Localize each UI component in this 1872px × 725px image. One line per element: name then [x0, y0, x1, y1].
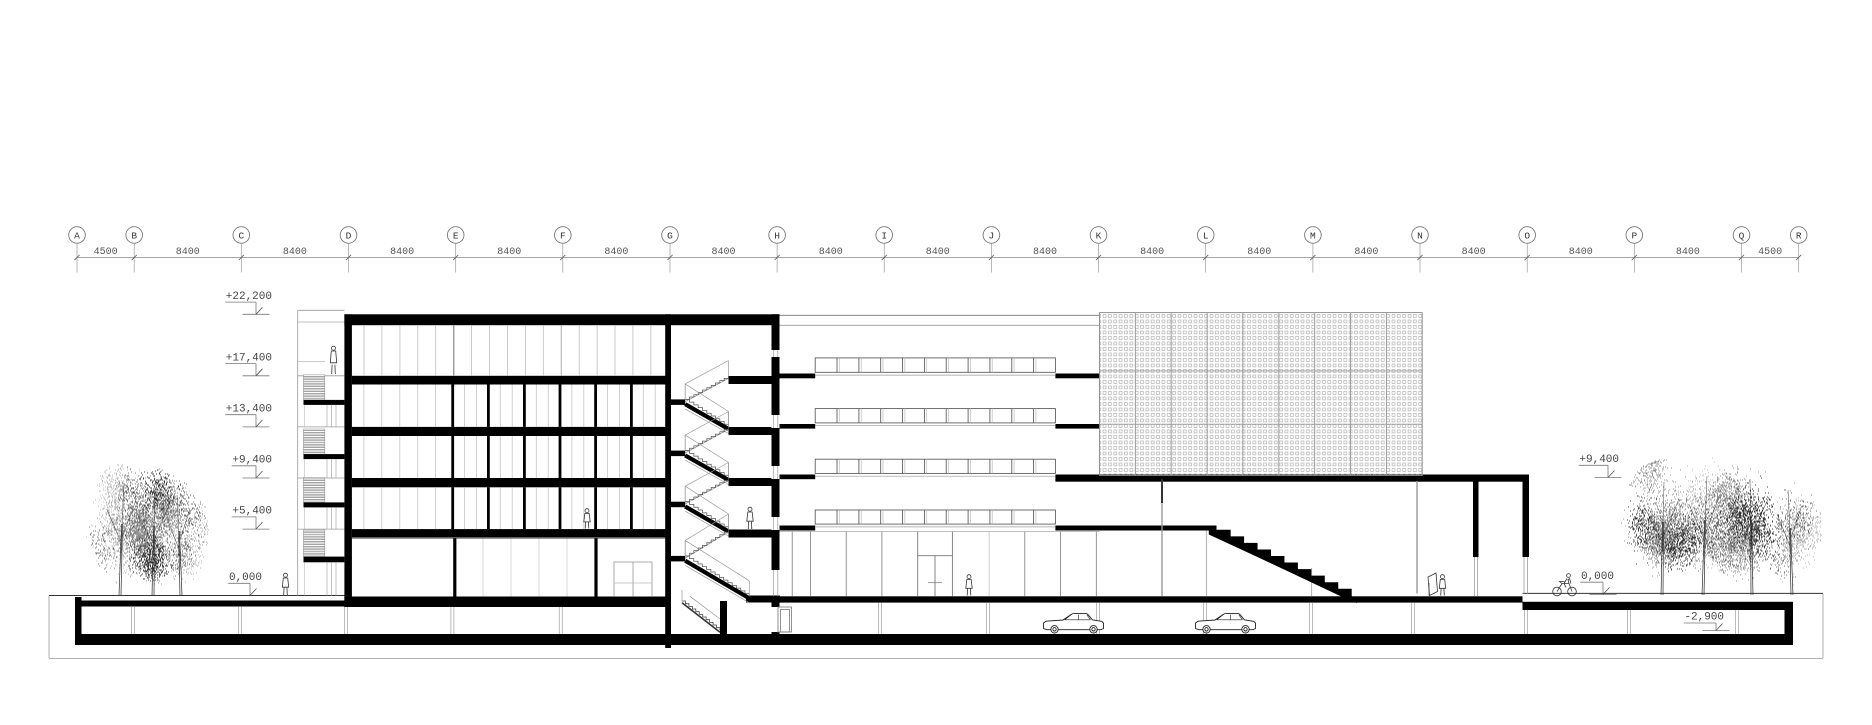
svg-text:8400: 8400: [1462, 247, 1486, 258]
svg-text:E: E: [453, 231, 459, 242]
svg-text:F: F: [560, 231, 566, 242]
svg-text:O: O: [1524, 231, 1530, 242]
svg-text:8400: 8400: [1247, 247, 1271, 258]
svg-text:+22,200: +22,200: [226, 291, 272, 303]
svg-text:8400: 8400: [497, 247, 521, 258]
svg-text:B: B: [131, 231, 137, 242]
svg-text:+13,400: +13,400: [226, 403, 272, 415]
svg-text:R: R: [1796, 231, 1802, 242]
svg-text:M: M: [1310, 231, 1316, 242]
svg-text:G: G: [667, 231, 673, 242]
svg-text:+17,400: +17,400: [226, 352, 272, 364]
svg-text:4500: 4500: [1758, 247, 1782, 258]
svg-text:L: L: [1203, 231, 1209, 242]
svg-text:K: K: [1096, 231, 1102, 242]
svg-text:8400: 8400: [1140, 247, 1164, 258]
svg-text:8400: 8400: [1354, 247, 1378, 258]
svg-text:I: I: [881, 231, 887, 242]
svg-text:0,000: 0,000: [1581, 571, 1614, 583]
svg-text:8400: 8400: [390, 247, 414, 258]
svg-text:C: C: [238, 231, 244, 242]
svg-text:N: N: [1417, 231, 1423, 242]
svg-text:8400: 8400: [604, 247, 628, 258]
svg-text:8400: 8400: [711, 247, 735, 258]
svg-text:8400: 8400: [283, 247, 307, 258]
svg-text:D: D: [346, 231, 352, 242]
svg-text:H: H: [774, 231, 780, 242]
svg-text:8400: 8400: [1569, 247, 1593, 258]
svg-text:0,000: 0,000: [229, 572, 262, 584]
svg-text:J: J: [989, 231, 995, 242]
svg-text:8400: 8400: [1676, 247, 1700, 258]
svg-text:-2,900: -2,900: [1684, 612, 1724, 624]
svg-text:Q: Q: [1739, 231, 1745, 242]
svg-text:+5,400: +5,400: [232, 506, 272, 518]
svg-text:8400: 8400: [1033, 247, 1057, 258]
svg-text:4500: 4500: [94, 247, 118, 258]
svg-text:+9,400: +9,400: [232, 455, 272, 467]
svg-text:A: A: [74, 231, 80, 242]
svg-text:+9,400: +9,400: [1579, 454, 1619, 466]
svg-text:8400: 8400: [819, 247, 843, 258]
svg-text:P: P: [1631, 231, 1637, 242]
svg-text:8400: 8400: [176, 247, 200, 258]
svg-text:8400: 8400: [926, 247, 950, 258]
